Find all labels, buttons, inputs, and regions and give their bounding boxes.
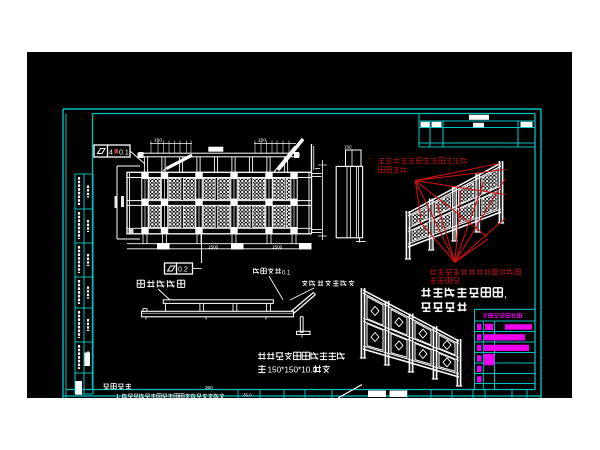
svg-text:35.0: 35.0 xyxy=(243,393,252,398)
svg-text:0.1: 0.1 xyxy=(119,150,129,157)
svg-text:350: 350 xyxy=(205,385,213,390)
svg-text:0.2: 0.2 xyxy=(178,267,188,274)
svg-text:,: , xyxy=(504,290,507,301)
svg-text:4: 4 xyxy=(109,150,113,157)
svg-text:1500: 1500 xyxy=(208,245,219,250)
svg-text:1500: 1500 xyxy=(272,245,283,250)
svg-text:150: 150 xyxy=(258,138,266,144)
svg-text:0.1: 0.1 xyxy=(282,271,291,277)
svg-text:150: 150 xyxy=(344,145,352,150)
svg-text:150*150*10.0: 150*150*10.0 xyxy=(268,366,318,375)
svg-text:1.: 1. xyxy=(116,394,121,400)
